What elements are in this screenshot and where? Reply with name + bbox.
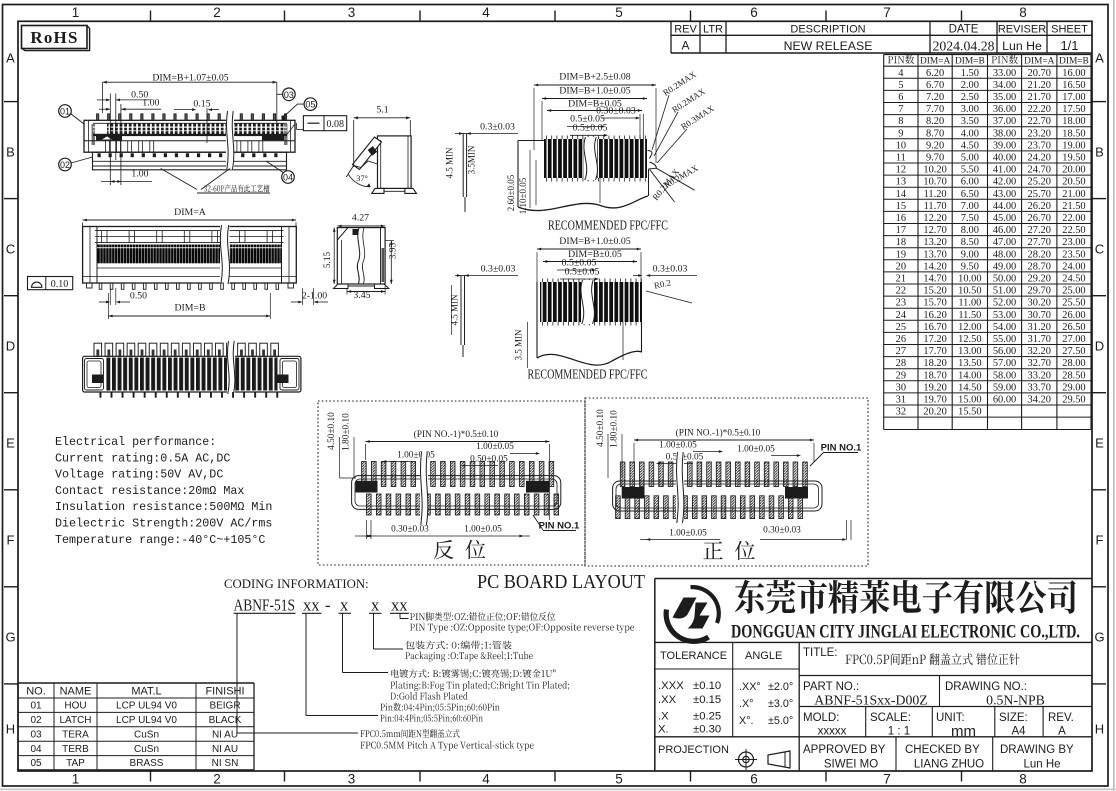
svg-text:41.00: 41.00 [993, 165, 1016, 176]
svg-text:31.20: 31.20 [1028, 322, 1051, 333]
svg-text:33.70: 33.70 [1028, 382, 1051, 393]
svg-text:35.00: 35.00 [993, 92, 1016, 103]
svg-text:46.00: 46.00 [993, 225, 1016, 236]
svg-text:1.00±0.05: 1.00±0.05 [669, 529, 707, 539]
svg-text:Insulation resistance:500MΩ Mi: Insulation resistance:500MΩ Min [55, 500, 272, 514]
svg-text:13.70: 13.70 [923, 249, 946, 260]
svg-text:19.50: 19.50 [1062, 153, 1085, 164]
svg-text:BRASS: BRASS [130, 758, 164, 769]
svg-text:13.20: 13.20 [923, 237, 946, 248]
svg-text:SCALE:: SCALE: [870, 712, 911, 724]
svg-text:8: 8 [898, 116, 903, 127]
svg-text:xxxxx: xxxxx [818, 726, 847, 738]
svg-text:G: G [5, 630, 15, 645]
svg-text:4: 4 [898, 68, 904, 79]
svg-text:11.50: 11.50 [958, 310, 981, 321]
svg-text:6.20: 6.20 [926, 68, 944, 79]
svg-text:4.5 MIN: 4.5 MIN [445, 147, 455, 178]
svg-text:BEIGR: BEIGR [209, 701, 240, 712]
svg-text:LCP UL94 V0: LCP UL94 V0 [116, 715, 177, 726]
svg-text:15.50: 15.50 [958, 407, 981, 418]
svg-text:Lun He: Lun He [1023, 759, 1060, 771]
svg-text:18.50: 18.50 [1062, 128, 1085, 139]
svg-text:53.00: 53.00 [993, 310, 1016, 321]
svg-text:0.3±0.03: 0.3±0.03 [653, 264, 688, 275]
svg-text:22.00: 22.00 [1062, 213, 1085, 224]
svg-text:17: 17 [896, 225, 906, 236]
svg-text:04: 04 [283, 173, 293, 183]
svg-text:43.00: 43.00 [993, 189, 1016, 200]
svg-text:3.00: 3.00 [961, 104, 979, 115]
svg-text:15.70: 15.70 [923, 298, 946, 309]
svg-text:mm: mm [951, 723, 976, 740]
svg-text:8.50: 8.50 [961, 237, 979, 248]
svg-text:16.50: 16.50 [1062, 80, 1085, 91]
svg-text:CHECKED BY: CHECKED BY [905, 744, 980, 756]
svg-text:26.00: 26.00 [1062, 310, 1085, 321]
svg-text:31: 31 [896, 395, 906, 406]
svg-text:TERA: TERA [62, 729, 89, 740]
svg-text:04: 04 [30, 744, 42, 755]
svg-text:DIM=B+1.0±0.05: DIM=B+1.0±0.05 [559, 236, 631, 247]
svg-text:1.50: 1.50 [961, 68, 979, 79]
svg-text:LATCH: LATCH [59, 715, 91, 726]
svg-text:TAP: TAP [66, 758, 85, 769]
svg-text:16.00: 16.00 [1062, 68, 1085, 79]
svg-text:28.20: 28.20 [1028, 249, 1051, 260]
svg-text:0.08: 0.08 [327, 119, 345, 130]
svg-text:50.00: 50.00 [993, 274, 1016, 285]
svg-text:10.00: 10.00 [958, 274, 981, 285]
svg-text:NI AU: NI AU [212, 744, 238, 755]
svg-text:1.00±0.05: 1.00±0.05 [737, 445, 775, 455]
svg-text:1.00: 1.00 [131, 169, 148, 180]
svg-text:9: 9 [898, 128, 903, 139]
svg-text:2: 2 [213, 5, 221, 20]
svg-text:D: D [1095, 339, 1104, 354]
svg-text:8.70: 8.70 [926, 128, 944, 139]
svg-text:4.5 MIN: 4.5 MIN [450, 294, 460, 325]
svg-text:1/1: 1/1 [1060, 38, 1078, 53]
svg-text:24.70: 24.70 [1028, 165, 1051, 176]
svg-text:30.20: 30.20 [1028, 298, 1051, 309]
svg-text:DONGGUAN CITY JINGLAI ELECTRON: DONGGUAN CITY JINGLAI ELECTRONIC CO.,LTD… [731, 623, 1080, 643]
svg-text:18.00: 18.00 [1062, 116, 1085, 127]
svg-text:6: 6 [750, 5, 758, 20]
svg-text:A: A [1058, 726, 1066, 738]
svg-text:E: E [1095, 436, 1104, 451]
svg-text:-: - [325, 596, 331, 615]
svg-text:32.70: 32.70 [1028, 358, 1051, 369]
svg-text:02: 02 [60, 160, 70, 170]
svg-text:X°.: X°. [739, 715, 754, 727]
svg-text:9.50: 9.50 [961, 261, 979, 272]
svg-text:TOLERANCE: TOLERANCE [660, 650, 727, 662]
svg-text:C: C [1095, 242, 1104, 257]
svg-text:33.00: 33.00 [993, 68, 1016, 79]
svg-text:14.70: 14.70 [923, 274, 946, 285]
svg-text:14.20: 14.20 [923, 261, 946, 272]
svg-text:REV.: REV. [1048, 712, 1074, 724]
svg-text:15: 15 [896, 201, 906, 212]
svg-text:10.20: 10.20 [923, 165, 946, 176]
svg-text:7: 7 [883, 5, 891, 20]
svg-text:28: 28 [896, 358, 906, 369]
svg-text:29.50: 29.50 [1062, 395, 1085, 406]
svg-text:17.50: 17.50 [1062, 104, 1085, 115]
svg-text:xx: xx [391, 596, 408, 615]
svg-text:15.00: 15.00 [958, 395, 981, 406]
svg-text:4.50±0.10: 4.50±0.10 [327, 412, 337, 450]
svg-text:14.50: 14.50 [958, 382, 981, 393]
svg-text:1.00±0.05: 1.00±0.05 [659, 441, 697, 451]
svg-text:(PIN NO.-1)*0.5±0.10: (PIN NO.-1)*0.5±0.10 [414, 429, 499, 440]
svg-text:12.50: 12.50 [958, 334, 981, 345]
svg-text:TERB: TERB [62, 744, 89, 755]
svg-text:0.30±0.03: 0.30±0.03 [763, 526, 801, 536]
svg-text:±2.0°: ±2.0° [768, 681, 793, 693]
svg-text:H: H [1095, 722, 1104, 737]
svg-text:21.50: 21.50 [1062, 201, 1085, 212]
svg-text:17.00: 17.00 [1062, 92, 1085, 103]
svg-text:22: 22 [896, 286, 906, 297]
svg-text:3.50: 3.50 [961, 116, 979, 127]
svg-text:DIM=A: DIM=A [920, 56, 951, 66]
svg-text:29.70: 29.70 [1028, 286, 1051, 297]
svg-text:12.70: 12.70 [923, 225, 946, 236]
svg-text:49.00: 49.00 [993, 261, 1016, 272]
svg-text:19.00: 19.00 [1062, 140, 1085, 151]
svg-text:F: F [7, 533, 15, 548]
svg-text:2.00: 2.00 [961, 80, 979, 91]
svg-text:47.00: 47.00 [993, 237, 1016, 248]
svg-text:21: 21 [896, 274, 906, 285]
svg-text:37.00: 37.00 [993, 116, 1016, 127]
svg-text:2024.04.28: 2024.04.28 [932, 38, 994, 53]
svg-text:45.00: 45.00 [993, 213, 1016, 224]
svg-text:6.50: 6.50 [961, 189, 979, 200]
svg-text:0.5±0.05: 0.5±0.05 [573, 123, 608, 134]
svg-text:±0.15: ±0.15 [693, 694, 721, 706]
svg-text:27.50: 27.50 [1062, 346, 1085, 357]
svg-text:37°: 37° [356, 174, 368, 183]
svg-text:54.00: 54.00 [993, 322, 1016, 333]
svg-text:9.20: 9.20 [926, 140, 944, 151]
svg-text:.XX°: .XX° [739, 681, 761, 693]
svg-text:12.20: 12.20 [923, 213, 946, 224]
svg-text:5: 5 [615, 772, 623, 787]
svg-text:DRAWING NO.:: DRAWING NO.: [945, 681, 1027, 693]
svg-text:28.50: 28.50 [1062, 370, 1085, 381]
svg-text:25.00: 25.00 [1062, 286, 1085, 297]
svg-text:TITLE:: TITLE: [803, 647, 838, 659]
svg-text:1.00±0.05: 1.00±0.05 [397, 451, 435, 461]
svg-text:5.00: 5.00 [961, 153, 979, 164]
svg-text:A: A [6, 51, 15, 66]
svg-text:22.20: 22.20 [1028, 104, 1051, 115]
svg-text:7.20: 7.20 [926, 92, 944, 103]
svg-text:DIM=A: DIM=A [174, 207, 206, 218]
svg-text:DIM=B+1.07±0.05: DIM=B+1.07±0.05 [152, 72, 228, 83]
svg-text:Electrical performance:: Electrical performance: [55, 435, 216, 449]
svg-text:16.20: 16.20 [923, 310, 946, 321]
svg-text:5.15: 5.15 [323, 252, 333, 269]
svg-text:23.50: 23.50 [1062, 249, 1085, 260]
svg-text:10.70: 10.70 [923, 177, 946, 188]
svg-text:B: B [6, 145, 15, 160]
svg-text:1.10±0.05: 1.10±0.05 [518, 177, 528, 214]
svg-text:22.50: 22.50 [1062, 225, 1085, 236]
svg-text:MOLD:: MOLD: [803, 712, 839, 724]
svg-text:10.50: 10.50 [958, 286, 981, 297]
svg-text:2-1.00: 2-1.00 [302, 290, 327, 301]
svg-text:32: 32 [896, 407, 906, 418]
svg-text:1 : 1: 1 : 1 [888, 726, 910, 738]
svg-text:±3.0°: ±3.0° [768, 698, 793, 710]
svg-text:48.00: 48.00 [993, 249, 1016, 260]
svg-text:34.00: 34.00 [993, 80, 1016, 91]
svg-text:±0.25: ±0.25 [693, 711, 721, 723]
svg-text:12: 12 [896, 165, 906, 176]
svg-text:F: F [1096, 533, 1104, 548]
svg-text:23.70: 23.70 [1028, 140, 1051, 151]
svg-text:23: 23 [896, 298, 906, 309]
svg-text:24.00: 24.00 [1062, 261, 1085, 272]
svg-text:±0.10: ±0.10 [693, 680, 721, 692]
svg-text:15.20: 15.20 [923, 286, 946, 297]
svg-text:Contact resistance:20mΩ Max: Contact resistance:20mΩ Max [55, 484, 244, 498]
svg-text:38.00: 38.00 [993, 128, 1016, 139]
svg-text:1.00±0.05: 1.00±0.05 [476, 442, 514, 452]
svg-text:NEW RELEASE: NEW RELEASE [784, 39, 873, 53]
svg-text:02: 02 [30, 715, 42, 726]
svg-text:0.10: 0.10 [51, 279, 69, 290]
svg-text:18.70: 18.70 [923, 370, 946, 381]
svg-text:27.00: 27.00 [1062, 334, 1085, 345]
svg-text:DIM=B: DIM=B [174, 303, 206, 314]
svg-text:14.00: 14.00 [958, 370, 981, 381]
svg-text:8.00: 8.00 [961, 225, 979, 236]
svg-text:21.70: 21.70 [1028, 92, 1051, 103]
svg-text:20.50: 20.50 [1062, 177, 1085, 188]
svg-text:25.20: 25.20 [1028, 177, 1051, 188]
svg-text:42.00: 42.00 [993, 177, 1016, 188]
svg-text:6: 6 [898, 92, 903, 103]
svg-text:40.00: 40.00 [993, 153, 1016, 164]
svg-text:B: B [1095, 145, 1104, 160]
svg-text:56.00: 56.00 [993, 346, 1016, 357]
svg-text:9.00: 9.00 [961, 249, 979, 260]
svg-text:PC BOARD LAYOUT: PC BOARD LAYOUT [477, 571, 645, 593]
svg-text:ANGLE: ANGLE [745, 650, 782, 662]
svg-text:DESCRIPTION: DESCRIPTION [790, 23, 865, 35]
svg-text:24.20: 24.20 [1028, 153, 1051, 164]
svg-text:20.20: 20.20 [923, 407, 946, 418]
svg-text:SIWEI MO: SIWEI MO [824, 759, 878, 771]
svg-text:X.: X. [658, 724, 669, 736]
svg-text:7.00: 7.00 [961, 201, 979, 212]
svg-text:27.20: 27.20 [1028, 225, 1051, 236]
svg-text:1: 1 [72, 5, 80, 20]
svg-text:DIM=B: DIM=B [1059, 56, 1089, 66]
svg-text:3: 3 [348, 772, 356, 787]
svg-text:Dielectric Strength:200V AC/rm: Dielectric Strength:200V AC/rms [55, 517, 272, 531]
svg-text:11.70: 11.70 [924, 201, 947, 212]
svg-text:26.70: 26.70 [1028, 213, 1051, 224]
svg-text:0.30±0.03: 0.30±0.03 [391, 525, 429, 535]
svg-text:29: 29 [896, 370, 906, 381]
svg-text:4.50: 4.50 [961, 140, 979, 151]
svg-text:58.00: 58.00 [993, 370, 1016, 381]
svg-text:5.50: 5.50 [961, 165, 979, 176]
svg-text:HOU: HOU [64, 701, 86, 712]
svg-text:13.00: 13.00 [958, 346, 981, 357]
svg-text:A4: A4 [1011, 726, 1026, 738]
svg-text:01: 01 [60, 107, 70, 117]
svg-text:24: 24 [896, 310, 907, 321]
svg-text:20: 20 [896, 261, 906, 272]
svg-text:36.00: 36.00 [993, 104, 1016, 115]
svg-text:Temperature range:-40°C~+105°C: Temperature range:-40°C~+105°C [55, 533, 265, 547]
svg-text:D: D [6, 339, 15, 354]
svg-text:12.00: 12.00 [958, 322, 981, 333]
svg-text:NI SN: NI SN [212, 758, 239, 769]
svg-text:03: 03 [30, 729, 42, 740]
svg-text:60.00: 60.00 [993, 395, 1016, 406]
svg-text:32.20: 32.20 [1028, 346, 1051, 357]
svg-text:17.70: 17.70 [923, 346, 946, 357]
svg-text:CODING INFORMATION:: CODING INFORMATION: [224, 577, 369, 591]
svg-text:27: 27 [896, 346, 906, 357]
svg-text:14: 14 [896, 189, 907, 200]
svg-text:24.50: 24.50 [1062, 274, 1085, 285]
svg-text:1.00±0.05: 1.00±0.05 [464, 525, 502, 535]
svg-text:29.20: 29.20 [1028, 274, 1051, 285]
svg-text:13.50: 13.50 [958, 358, 981, 369]
svg-text:REV: REV [674, 23, 697, 35]
svg-text:0.15: 0.15 [193, 98, 210, 109]
svg-text:03: 03 [284, 90, 294, 100]
svg-text:0.3±0.03: 0.3±0.03 [480, 122, 515, 133]
svg-text:NO.: NO. [26, 685, 46, 697]
svg-text:1: 1 [72, 772, 80, 787]
svg-text:Lun He: Lun He [1002, 39, 1042, 53]
svg-text:H: H [6, 722, 15, 737]
svg-text:.XX: .XX [658, 694, 677, 706]
svg-text:13: 13 [896, 177, 906, 188]
svg-text:4.00: 4.00 [961, 128, 979, 139]
svg-text:LTR: LTR [703, 23, 723, 35]
svg-text:7.50: 7.50 [961, 213, 979, 224]
svg-text:52.00: 52.00 [993, 298, 1016, 309]
svg-text:16: 16 [896, 213, 906, 224]
svg-text:9.70: 9.70 [926, 153, 944, 164]
svg-text:DIM=B+1.0±0.05: DIM=B+1.0±0.05 [559, 86, 631, 97]
svg-text:CuSn: CuSn [134, 729, 159, 740]
svg-text:8: 8 [1019, 5, 1027, 20]
svg-text:±0.30: ±0.30 [693, 724, 721, 736]
svg-text:25: 25 [896, 322, 906, 333]
svg-text:27.70: 27.70 [1028, 237, 1051, 248]
svg-text:39.00: 39.00 [993, 140, 1016, 151]
svg-text:x: x [340, 596, 349, 615]
svg-text:PROJECTION: PROJECTION [658, 744, 729, 756]
svg-text:26.50: 26.50 [1062, 322, 1085, 333]
svg-text:6.00: 6.00 [961, 177, 979, 188]
svg-text:SHEET: SHEET [1051, 23, 1088, 35]
svg-text:Current rating:0.5A AC,DC: Current rating:0.5A AC,DC [55, 451, 230, 465]
svg-text:20.70: 20.70 [1028, 68, 1051, 79]
svg-text:7: 7 [898, 104, 903, 115]
svg-text:17.20: 17.20 [923, 334, 946, 345]
svg-text:1.80±0.10: 1.80±0.10 [610, 410, 620, 448]
svg-text:3.5 MIN: 3.5 MIN [514, 329, 524, 360]
svg-text:DATE: DATE [949, 24, 979, 36]
svg-text:10: 10 [896, 140, 906, 151]
svg-text:11: 11 [896, 153, 906, 164]
svg-text:4: 4 [482, 5, 490, 20]
svg-text:20.00: 20.00 [1062, 165, 1085, 176]
svg-text:SIZE:: SIZE: [999, 712, 1028, 724]
svg-text:19.20: 19.20 [923, 382, 946, 393]
svg-text:A: A [1095, 51, 1104, 66]
svg-text:RoHS: RoHS [30, 28, 78, 47]
svg-text:FINISHI: FINISHI [205, 685, 244, 697]
svg-text:7.70: 7.70 [926, 104, 944, 115]
svg-text:LCP UL94 V0: LCP UL94 V0 [116, 701, 177, 712]
svg-text:30.70: 30.70 [1028, 310, 1051, 321]
svg-text:.X°: .X° [739, 698, 754, 710]
svg-text:5: 5 [898, 80, 903, 91]
svg-text:PART NO.:: PART NO.: [803, 681, 859, 693]
svg-text:A: A [681, 39, 689, 53]
svg-text:.X: .X [658, 711, 669, 723]
svg-text:xx: xx [303, 596, 320, 615]
svg-text:4.27: 4.27 [352, 213, 369, 224]
svg-text:1.00: 1.00 [142, 98, 159, 109]
svg-text:LIANG ZHUO: LIANG ZHUO [914, 759, 984, 771]
svg-text:05: 05 [305, 100, 315, 110]
svg-text:DIM=A: DIM=A [1024, 56, 1055, 66]
svg-text:59.00: 59.00 [993, 382, 1016, 393]
svg-text:34.20: 34.20 [1028, 395, 1051, 406]
svg-text:DIM=B: DIM=B [955, 56, 985, 66]
svg-text:25.70: 25.70 [1028, 189, 1051, 200]
svg-text:DIM=B+2.5±0.08: DIM=B+2.5±0.08 [559, 72, 631, 83]
svg-text:01: 01 [30, 701, 42, 712]
svg-text:44.00: 44.00 [993, 201, 1016, 212]
svg-text:PIN NO.1: PIN NO.1 [821, 443, 862, 454]
svg-text:26: 26 [896, 334, 906, 345]
svg-text:3.95: 3.95 [389, 243, 399, 260]
svg-text:25.50: 25.50 [1062, 298, 1085, 309]
svg-text:30: 30 [896, 382, 906, 393]
svg-text:RECOMMENDED FPC/FFC: RECOMMENDED FPC/FFC [528, 367, 648, 382]
svg-text:21.00: 21.00 [1062, 189, 1085, 200]
svg-text:23.00: 23.00 [1062, 237, 1085, 248]
svg-text:6.70: 6.70 [926, 80, 944, 91]
svg-text:2: 2 [213, 772, 221, 787]
svg-text:1.80±0.10: 1.80±0.10 [342, 413, 352, 451]
svg-text:21.20: 21.20 [1028, 80, 1051, 91]
svg-text:CuSn: CuSn [134, 744, 159, 755]
svg-text:NAME: NAME [60, 685, 92, 697]
svg-text:8.20: 8.20 [926, 116, 944, 127]
svg-text:23.20: 23.20 [1028, 128, 1051, 139]
svg-text:26.20: 26.20 [1028, 201, 1051, 212]
svg-text:5.1: 5.1 [376, 105, 388, 116]
svg-text:0.50±0.05: 0.50±0.05 [666, 453, 704, 463]
